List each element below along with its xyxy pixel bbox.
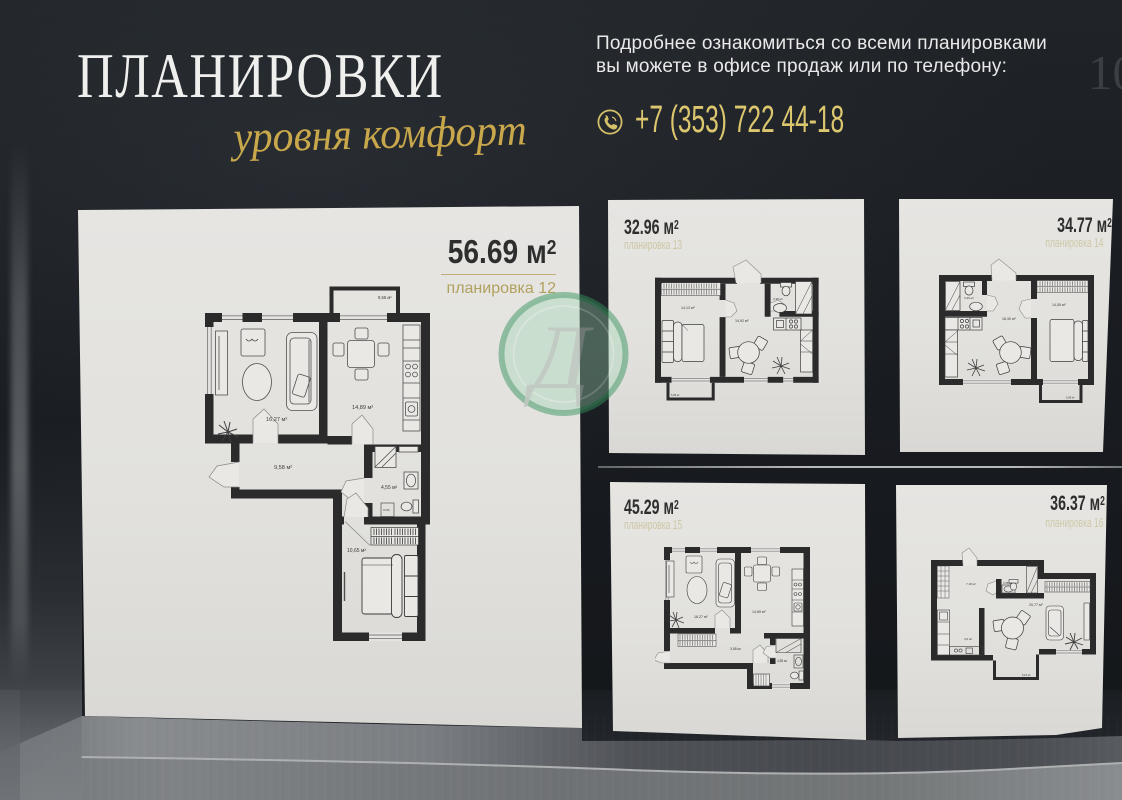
svg-text:20,77 м²: 20,77 м² <box>1029 603 1043 607</box>
svg-text:9,55 м²: 9,55 м² <box>378 295 392 300</box>
svg-text:14,89 м²: 14,89 м² <box>352 405 373 411</box>
svg-text:Д: Д <box>523 306 594 408</box>
svg-text:3,58 м²: 3,58 м² <box>730 647 742 651</box>
svg-text:4,6 м²: 4,6 м² <box>964 637 972 641</box>
svg-text:3,58 м²: 3,58 м² <box>1003 581 1012 585</box>
svg-text:3,38 м²: 3,38 м² <box>773 297 783 301</box>
svg-text:14,13 м²: 14,13 м² <box>681 306 695 310</box>
svg-text:14,55 м²: 14,55 м² <box>1052 303 1066 307</box>
svg-text:7,18 м²: 7,18 м² <box>966 582 976 586</box>
svg-text:3,39 м²: 3,39 м² <box>964 296 974 300</box>
svg-text:4,55 м²: 4,55 м² <box>381 485 398 491</box>
svg-text:9,58 м²: 9,58 м² <box>274 465 292 471</box>
svg-text:01,56: 01,56 <box>383 508 390 512</box>
svg-text:14,89 м²: 14,89 м² <box>752 610 766 614</box>
svg-text:14,92 м²: 14,92 м² <box>735 319 749 323</box>
svg-text:16,30 м²: 16,30 м² <box>1002 317 1016 321</box>
svg-text:4,55 м²: 4,55 м² <box>777 659 787 663</box>
svg-text:10,65 м²: 10,65 м² <box>347 548 366 554</box>
svg-text:5,08 м²: 5,08 м² <box>1066 396 1075 400</box>
svg-text:5,08 м²: 5,08 м² <box>671 393 680 397</box>
svg-text:5,16 м²: 5,16 м² <box>1022 673 1031 677</box>
svg-text:16,27 м²: 16,27 м² <box>266 417 287 423</box>
svg-text:16,27 м²: 16,27 м² <box>694 615 708 619</box>
